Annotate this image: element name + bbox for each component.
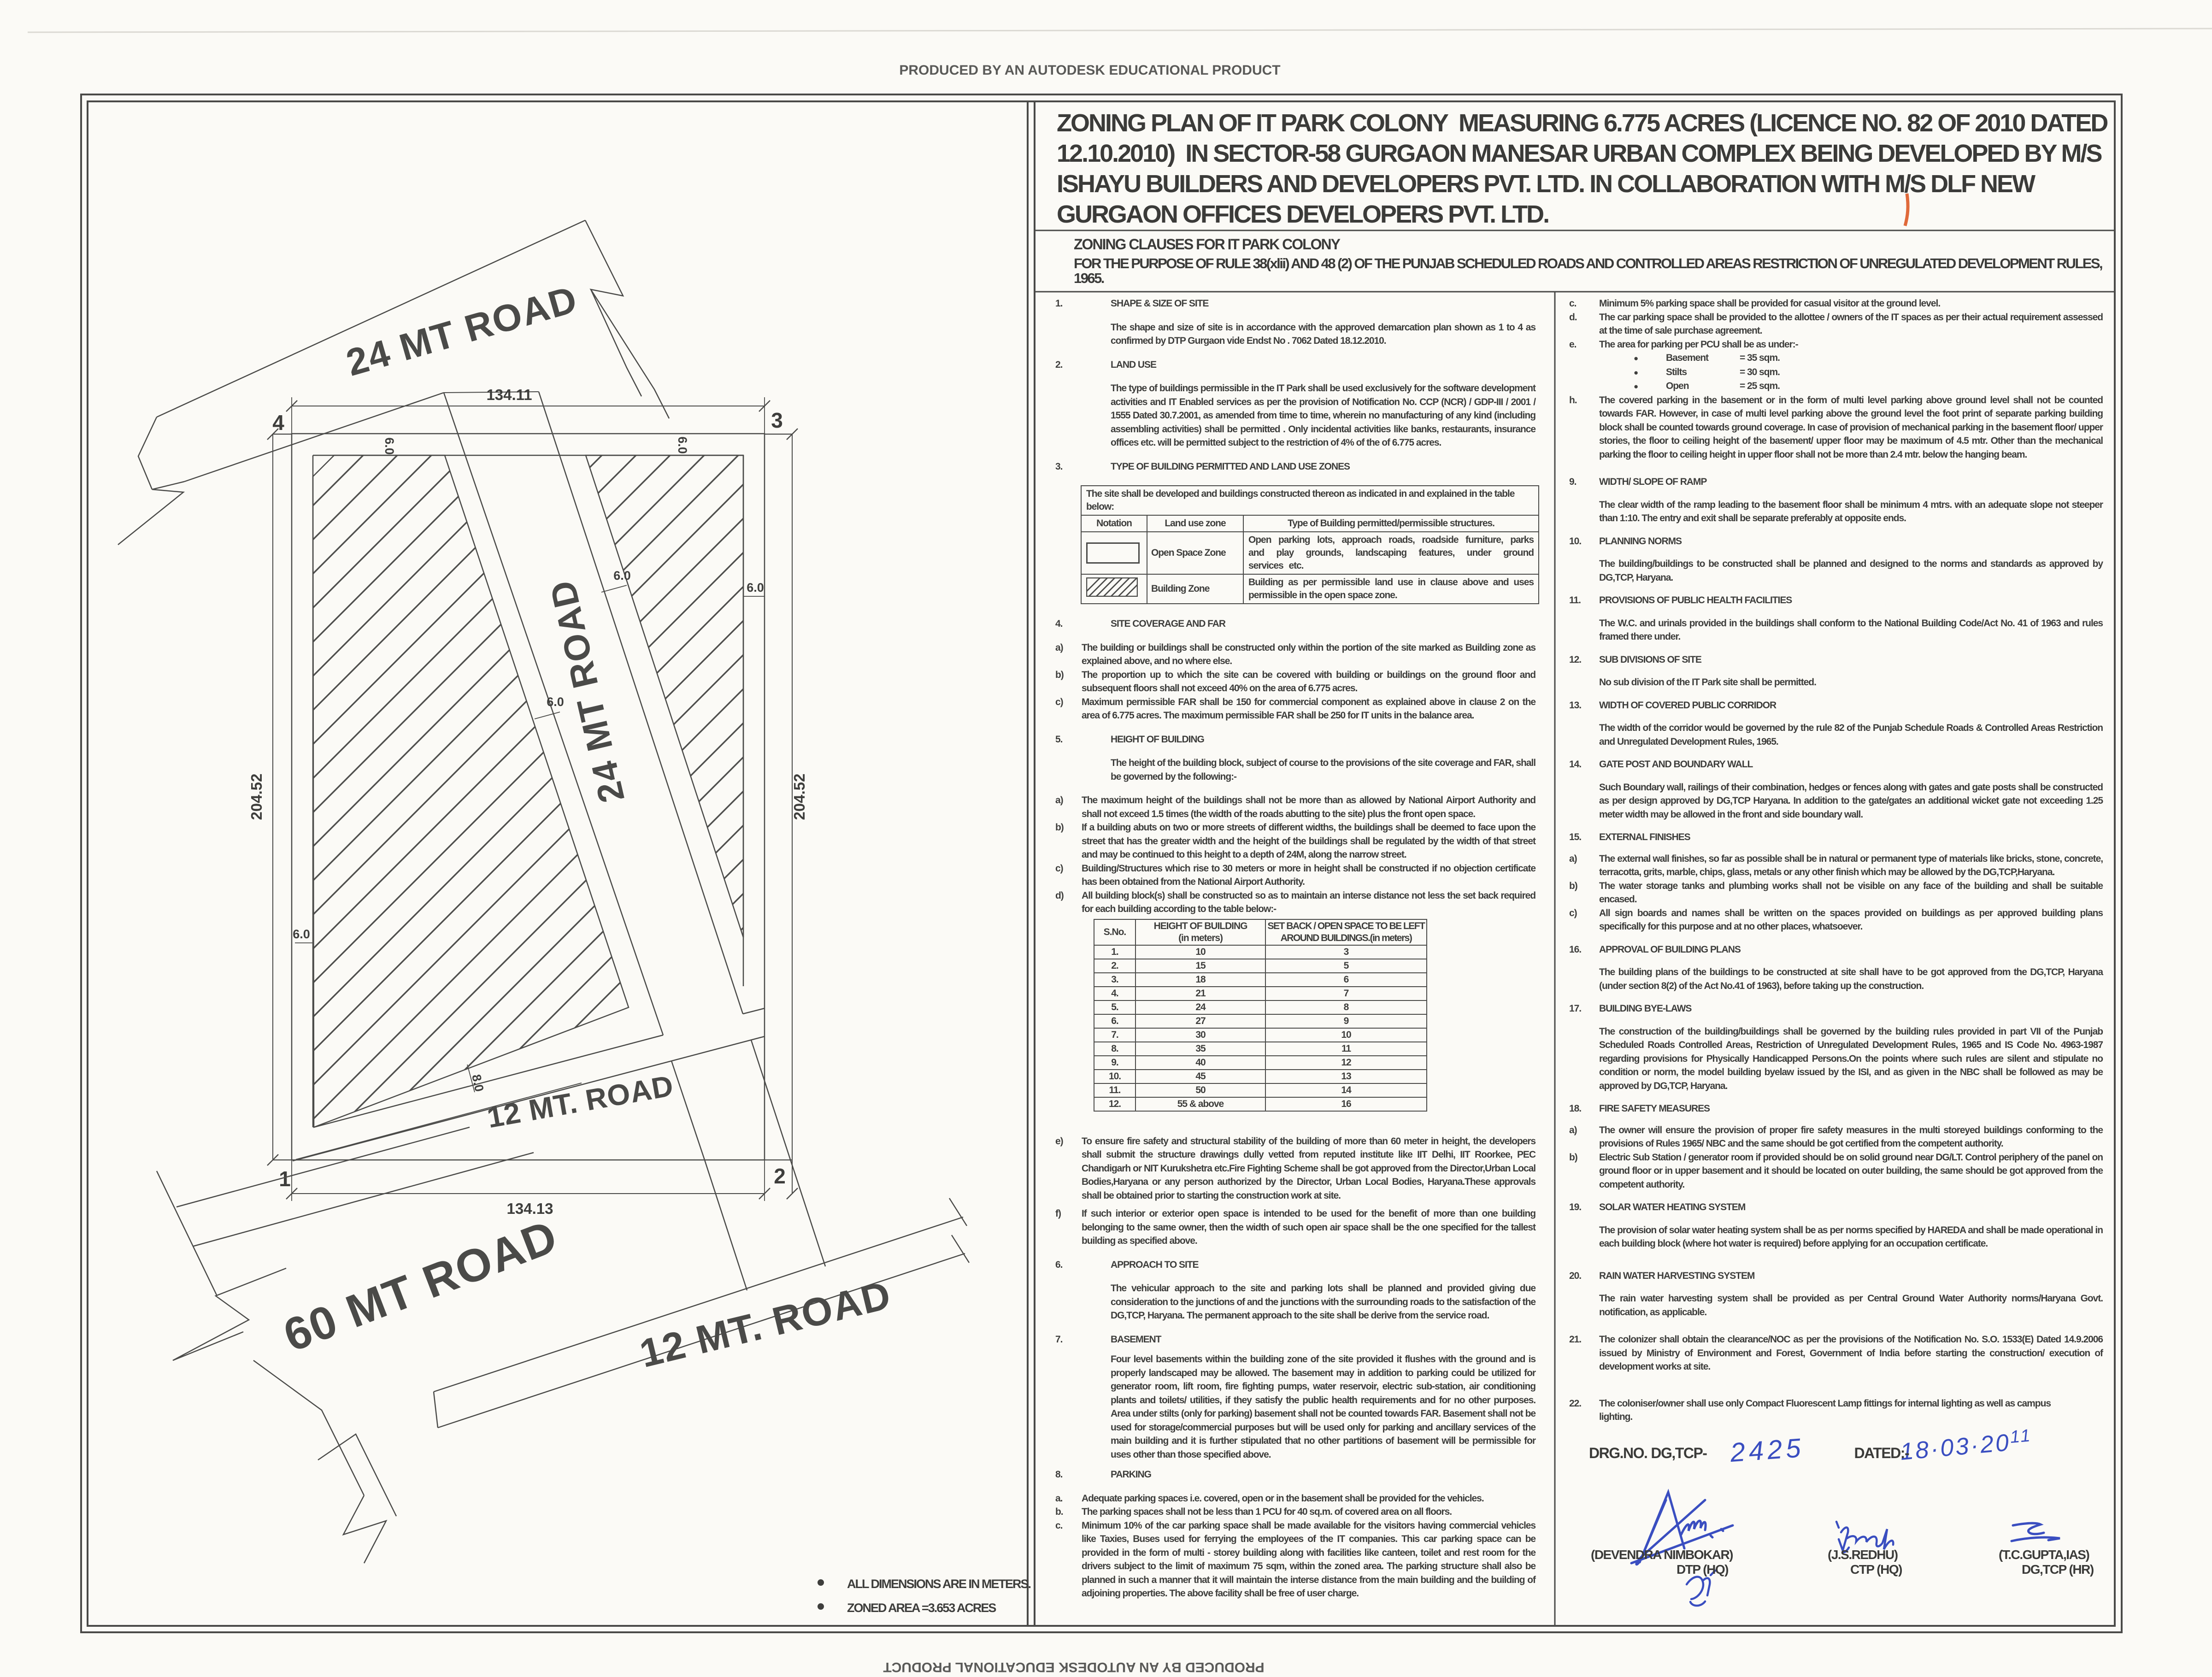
svg-text:24 MT ROAD: 24 MT ROAD <box>541 576 632 806</box>
svg-text:6.0: 6.0 <box>547 695 564 709</box>
svg-text:2: 2 <box>774 1164 786 1188</box>
svg-text:204.52: 204.52 <box>248 774 265 820</box>
svg-text:12 MT. ROAD: 12 MT. ROAD <box>635 1273 895 1376</box>
svg-text:12 MT. ROAD: 12 MT. ROAD <box>484 1069 676 1134</box>
svg-text:6.0: 6.0 <box>747 581 764 594</box>
svg-text:18·03·2011: 18·03·2011 <box>1899 1426 2034 1465</box>
svg-text:3: 3 <box>771 408 783 432</box>
svg-text:ALL DIMENSIONS ARE IN METERS.: ALL DIMENSIONS ARE IN METERS. <box>847 1577 1031 1591</box>
svg-text:6.0: 6.0 <box>613 569 631 583</box>
svg-text:6.0: 6.0 <box>676 436 689 454</box>
svg-text:134.11: 134.11 <box>486 386 532 403</box>
svg-text:4: 4 <box>272 411 284 435</box>
svg-text:24 MT ROAD: 24 MT ROAD <box>342 278 582 384</box>
svg-text:PRODUCED BY AN AUTODESK EDUCAT: PRODUCED BY AN AUTODESK EDUCATIONAL PROD… <box>883 1659 1264 1675</box>
svg-text:60 MT ROAD: 60 MT ROAD <box>277 1210 565 1362</box>
svg-text:PRODUCED BY AN AUTODESK EDUCAT: PRODUCED BY AN AUTODESK EDUCATIONAL PROD… <box>899 63 1280 78</box>
svg-text:ZONED AREA =3.653 ACRES: ZONED AREA =3.653 ACRES <box>847 1601 996 1615</box>
svg-text:204.52: 204.52 <box>791 774 808 820</box>
svg-text:6.0: 6.0 <box>293 927 310 941</box>
svg-text:6.0: 6.0 <box>382 437 396 455</box>
